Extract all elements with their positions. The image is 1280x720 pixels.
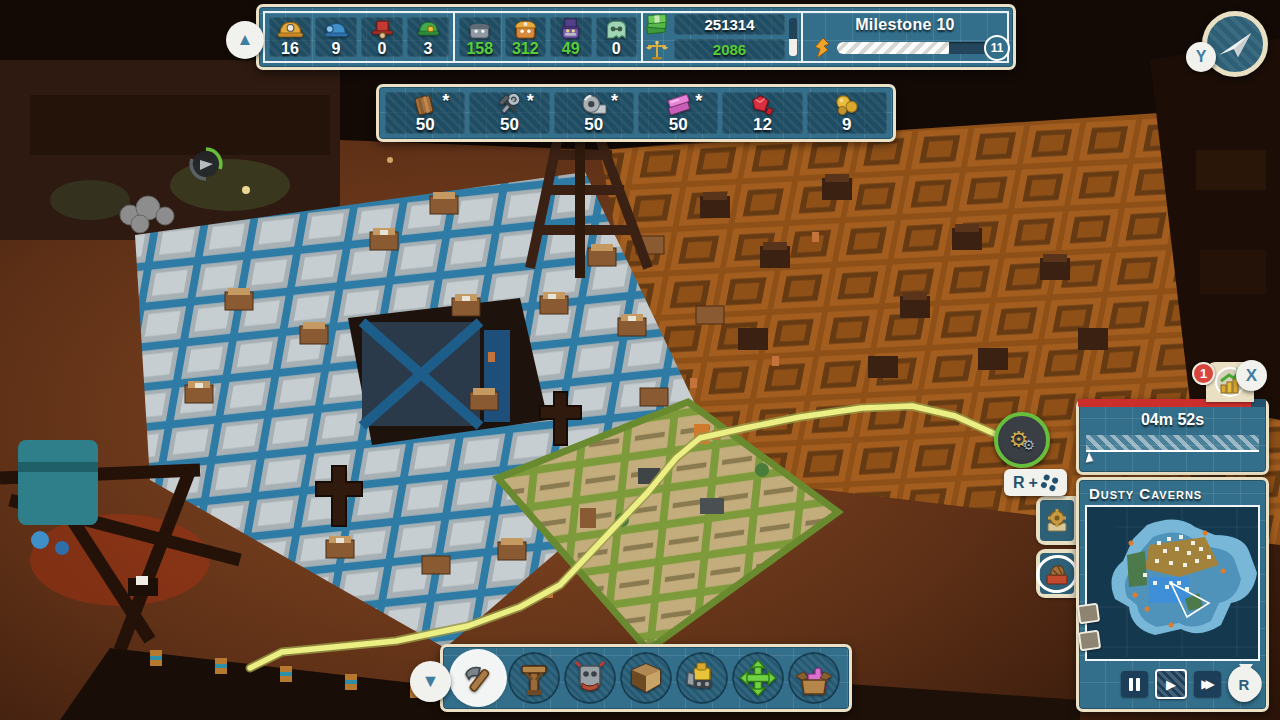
population-tier-2[interactable]: 312	[505, 17, 547, 57]
planks-count: 50	[416, 116, 435, 134]
population-tier-3[interactable]: 49	[550, 17, 592, 57]
tool-support-post[interactable]	[508, 652, 560, 704]
miner-count: 16	[281, 40, 299, 57]
stick-press-icon	[1040, 473, 1060, 492]
red-worker-count: 0	[378, 40, 387, 57]
y-label: Y	[1196, 48, 1207, 66]
pink-ingot-cap-star: *	[695, 91, 702, 112]
paper-plane-icon	[1216, 27, 1254, 61]
population-tier-1[interactable]: 158	[459, 17, 501, 57]
resource-gold[interactable]: 9	[807, 92, 887, 134]
tool-room-walls[interactable]	[620, 652, 672, 704]
tool-build-hammer[interactable]	[452, 652, 504, 704]
tool-bulldozer[interactable]	[676, 652, 728, 704]
map-marker-cart-2[interactable]	[1078, 630, 1101, 652]
service-building-indicator[interactable]: ⚙ ⚙	[994, 412, 1050, 468]
population-section: 158 312 49 0	[453, 13, 641, 61]
collapse-toolbar-button[interactable]: ▼	[410, 661, 451, 702]
gold-nuggets-icon	[832, 94, 862, 116]
timer-progressbar	[1086, 435, 1259, 452]
pause-icon	[1129, 678, 1140, 691]
citizen-purple-tophat-icon	[557, 18, 584, 40]
resource-bar-panel: 50 * 50 * 50 * 50 * 12 9	[376, 84, 896, 142]
worker-counts-section: 16 9 0 3	[265, 13, 453, 61]
miner-helmet-yellow-icon	[277, 18, 304, 40]
income-row[interactable]: 2086	[645, 39, 785, 61]
resource-pink-ingot[interactable]: 50 *	[638, 92, 718, 134]
selection-ring	[1033, 551, 1081, 596]
steel-cap-star: *	[611, 91, 618, 112]
rubies-count: 12	[753, 116, 772, 134]
worker-tophat-red-icon	[369, 18, 396, 40]
minimap-image	[1087, 507, 1260, 657]
milestone-next-badge: 11	[984, 35, 1010, 61]
expand-panel-button[interactable]: ▲	[226, 21, 264, 59]
milestone-section[interactable]: Milestone 10 11	[801, 13, 1007, 61]
resource-tools[interactable]: 50 *	[469, 92, 549, 134]
support-post-icon	[514, 658, 554, 698]
rotate-camera-button[interactable]: R	[1228, 666, 1260, 702]
hammer-icon	[458, 658, 498, 698]
pause-button[interactable]	[1121, 671, 1148, 697]
steel-coil-icon	[579, 94, 609, 116]
steel-count: 50	[584, 116, 603, 134]
milestone-fill	[837, 42, 949, 54]
tier2-count: 312	[512, 40, 539, 57]
tool-storage-box[interactable]	[788, 652, 840, 704]
rubies-icon	[747, 94, 777, 116]
close-x-label: X	[1246, 366, 1257, 386]
population-tier-4[interactable]: 0	[596, 17, 638, 57]
robot-head-icon	[570, 658, 610, 698]
gold-count: 9	[842, 116, 851, 134]
citizen-orange-helmet-icon	[512, 18, 539, 40]
tools-icon	[494, 94, 524, 116]
tier1-count: 158	[466, 40, 493, 57]
small-gear-icon: ⚙	[1023, 437, 1036, 453]
map-title: Dusty Caverns	[1079, 480, 1266, 505]
close-button[interactable]: X	[1236, 360, 1267, 391]
citizen-green-bot-icon	[603, 18, 630, 40]
event-timer-panel: 04m 52s	[1076, 399, 1269, 475]
resource-rubies[interactable]: 12	[722, 92, 802, 134]
worker-count-miners[interactable]: 16	[269, 17, 311, 57]
tier3-count: 49	[562, 40, 580, 57]
money-section: 251314 2086	[641, 13, 801, 61]
worker-cap-blue-icon	[323, 18, 350, 40]
lightning-icon	[813, 38, 831, 58]
down-arrow-icon: ▼	[422, 671, 440, 692]
worker-hat-green-icon	[415, 18, 442, 40]
bulldozer-icon	[682, 658, 722, 698]
tools-count: 50	[500, 116, 519, 134]
minimap-view[interactable]	[1085, 505, 1260, 661]
pink-ingot-count: 50	[669, 116, 688, 134]
tool-robot-head[interactable]	[564, 652, 616, 704]
milestone-progressbar: 11	[837, 42, 997, 54]
move-arrows-icon	[738, 658, 778, 698]
play-icon: ▶	[1166, 678, 1176, 691]
box-puzzle-icon	[794, 658, 834, 698]
build-toolbar-panel	[440, 644, 852, 712]
scales-icon	[645, 39, 669, 61]
y-button-prompt[interactable]: Y	[1186, 42, 1216, 72]
notification-count-badge: 1	[1192, 362, 1215, 385]
blue-worker-count: 9	[332, 40, 341, 57]
timer-remaining: 04m 52s	[1079, 411, 1266, 429]
tab-mining[interactable]	[1036, 549, 1078, 598]
room-corner-icon	[626, 658, 666, 698]
notification-count: 1	[1200, 366, 1207, 381]
worker-count-green[interactable]: 3	[407, 17, 449, 57]
tools-cap-star: *	[527, 91, 534, 112]
gear-block-icon	[1044, 508, 1070, 534]
game-screen: { "colors":{"panel_blue":"#336f8b","pane…	[0, 0, 1280, 720]
cash-amount: 251314	[704, 16, 754, 33]
green-worker-count: 3	[424, 40, 433, 57]
pink-ingot-icon	[663, 94, 693, 116]
worker-count-blue[interactable]: 9	[315, 17, 357, 57]
minimap-panel: Dusty Caverns	[1076, 477, 1269, 712]
citizen-gray-cap-icon	[466, 18, 493, 40]
tool-move[interactable]	[732, 652, 784, 704]
cursor-arrow-icon	[1085, 452, 1095, 465]
resource-steel[interactable]: 50 *	[554, 92, 634, 134]
planks-cap-star: *	[442, 91, 449, 112]
planks-icon	[410, 94, 440, 116]
cash-row[interactable]: 251314	[645, 14, 785, 36]
money-icon	[645, 14, 669, 36]
worker-count-red[interactable]: 0	[361, 17, 403, 57]
r-button-prompt[interactable]: R +	[1004, 469, 1067, 496]
tier4-count: 0	[612, 40, 621, 57]
milestone-title: Milestone 10	[813, 16, 997, 34]
r-label: R	[1013, 474, 1025, 492]
playback-controls: ▶ ▶▶ R	[1079, 661, 1266, 709]
fast-forward-icon: ▶▶	[1201, 678, 1213, 691]
income-amount: 2086	[713, 41, 746, 58]
fast-forward-button[interactable]: ▶▶	[1194, 671, 1221, 697]
top-hud-panel: 16 9 0 3 158 312	[256, 4, 1016, 70]
rotate-arrow-icon	[1222, 660, 1270, 708]
map-marker-cart-1[interactable]	[1077, 603, 1100, 625]
treasury-gauge	[789, 18, 797, 56]
play-button[interactable]: ▶	[1155, 669, 1188, 699]
up-arrow-icon: ▲	[237, 30, 254, 50]
plus-label: +	[1029, 474, 1038, 492]
resource-planks[interactable]: 50 *	[385, 92, 465, 134]
tab-buildings[interactable]	[1036, 496, 1078, 545]
